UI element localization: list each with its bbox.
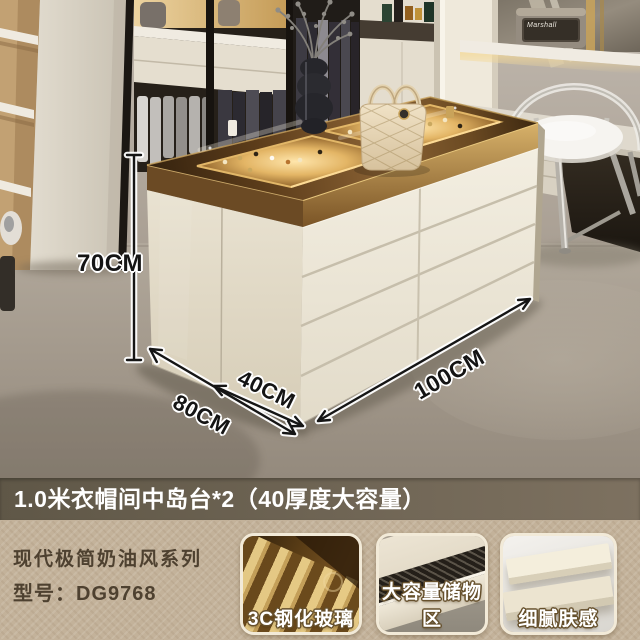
feature-caption: 细腻肤感 [503,604,614,631]
title-banner: 1.0米衣帽间中岛台*2（40厚度大容量） [0,478,640,520]
product-title: 1.0米衣帽间中岛台*2（40厚度大容量） [0,478,640,520]
display-vase [218,0,240,26]
feature-caption: 3C钢化玻璃 [243,604,359,631]
height-dimension-label: 70CM [77,250,143,278]
speaker-logo-text: Marshall [527,22,557,29]
gold-perfume [446,106,454,118]
small-jar [228,120,237,136]
model-number: 型号：DG9768 [13,577,157,606]
info-panel: 现代极简奶油风系列 型号：DG9768 3C钢化玻璃 大容量储物区 细腻肤感 [0,520,640,640]
product-photo: 70CM 40CM 80CM 100CM Marshall [0,0,640,478]
feature-card-finish: 细腻肤感 [500,533,617,635]
dressing-room-illustration [0,0,640,478]
display-vase [140,2,166,28]
certification-mark [323,572,343,592]
series-name: 现代极简奶油风系列 [13,544,202,571]
bag-charm [399,109,409,119]
product-listing-image: 70CM 40CM 80CM 100CM Marshall 1.0米衣帽间中岛台… [0,0,640,640]
feature-card-glass: 3C钢化玻璃 [240,533,362,635]
feature-card-storage: 大容量储物区 [376,533,488,635]
feature-caption: 大容量储物区 [379,577,485,631]
